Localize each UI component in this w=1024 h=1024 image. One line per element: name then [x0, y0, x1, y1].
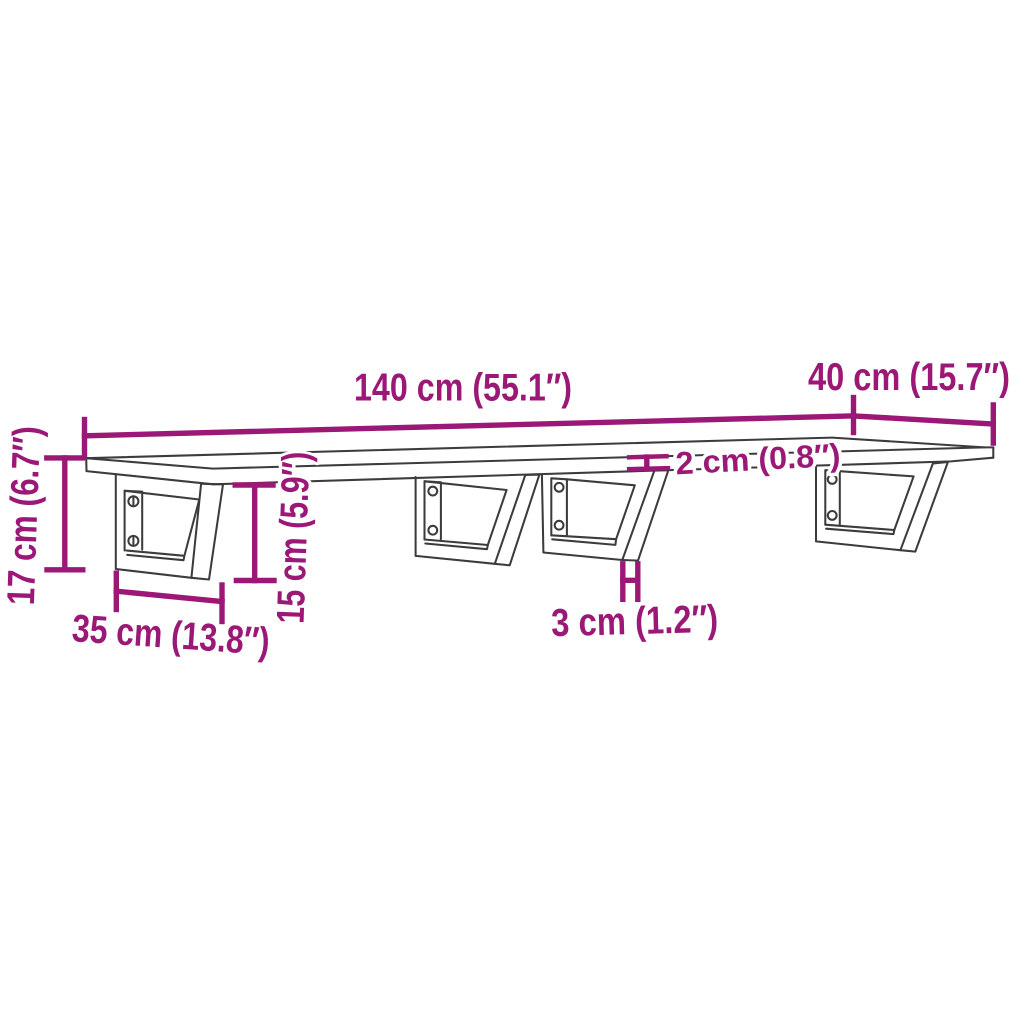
- svg-text:15 cm (5.9″): 15 cm (5.9″): [270, 451, 319, 624]
- svg-text:40 cm (15.7″): 40 cm (15.7″): [808, 356, 1010, 399]
- svg-text:3 cm (1.2″): 3 cm (1.2″): [551, 598, 719, 645]
- svg-text:140 cm (55.1″): 140 cm (55.1″): [354, 367, 572, 410]
- svg-text:17 cm (6.7″): 17 cm (6.7″): [0, 425, 49, 605]
